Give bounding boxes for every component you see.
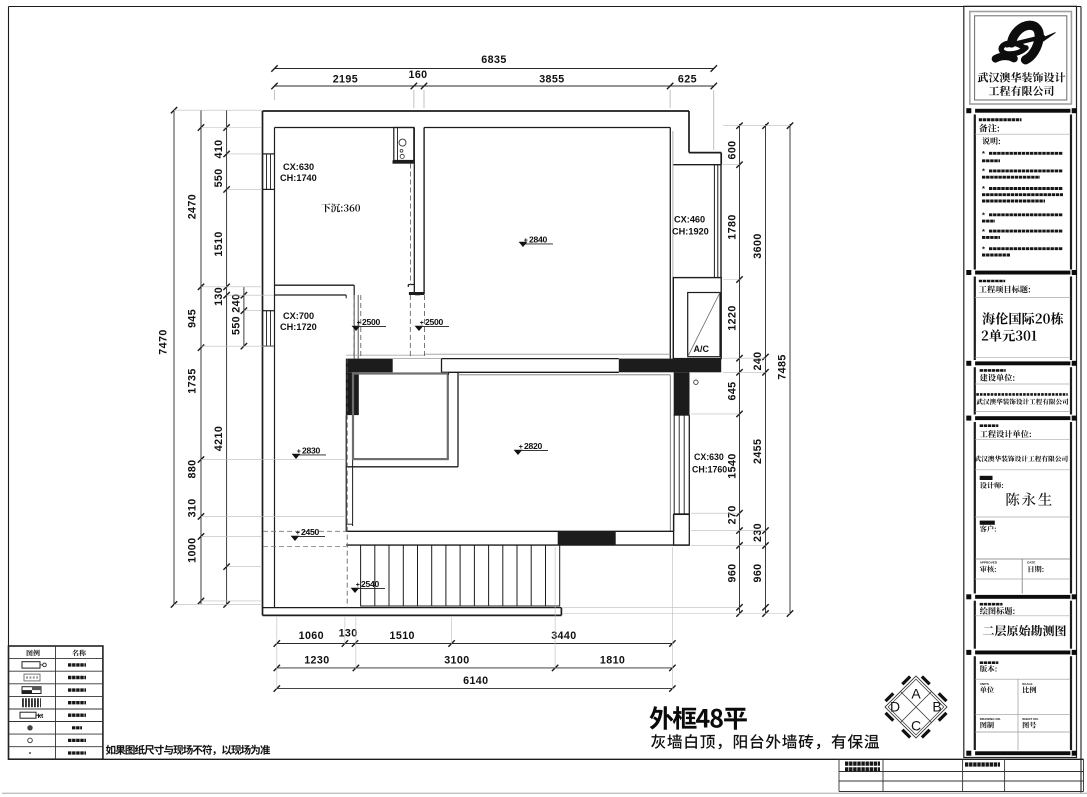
svg-text:2195: 2195: [333, 74, 358, 86]
svg-text:CH:1760: CH:1760: [692, 465, 727, 475]
svg-text:550: 550: [213, 168, 225, 187]
svg-text:240: 240: [231, 294, 243, 313]
svg-text:1510: 1510: [213, 231, 225, 256]
svg-text:1060: 1060: [299, 630, 324, 642]
svg-text:D: D: [890, 699, 900, 715]
svg-text:2500: 2500: [362, 317, 380, 327]
svg-text:645: 645: [727, 381, 739, 400]
svg-text:*: *: [982, 149, 985, 158]
svg-text:945: 945: [187, 309, 199, 328]
svg-text:CX:630: CX:630: [283, 162, 314, 172]
svg-text:2455: 2455: [752, 439, 764, 464]
svg-text:1000: 1000: [187, 538, 199, 563]
svg-text:A/C: A/C: [694, 344, 710, 354]
svg-text:7485: 7485: [777, 354, 789, 379]
svg-text:CH:1920: CH:1920: [672, 227, 709, 237]
svg-text:2450: 2450: [301, 527, 319, 537]
svg-text:960: 960: [752, 563, 764, 582]
svg-text:SCALE: SCALE: [1022, 682, 1033, 686]
svg-text:CX:460: CX:460: [674, 215, 705, 225]
svg-text:3100: 3100: [444, 655, 469, 667]
svg-text:6140: 6140: [463, 675, 488, 687]
svg-text:270: 270: [727, 505, 739, 524]
svg-text:CX:630: CX:630: [694, 452, 724, 462]
svg-text:6835: 6835: [481, 54, 506, 66]
svg-text:*: *: [982, 211, 985, 220]
svg-text:DRAWING NO.: DRAWING NO.: [980, 717, 1001, 721]
svg-text:3855: 3855: [539, 74, 564, 86]
svg-text:2540: 2540: [361, 579, 379, 589]
svg-text:2500: 2500: [425, 317, 443, 327]
svg-text:3600: 3600: [752, 233, 764, 258]
svg-text:310: 310: [187, 498, 199, 517]
svg-text:1510: 1510: [390, 630, 415, 642]
svg-text:SHEET NO.: SHEET NO.: [1022, 717, 1039, 721]
svg-text:UNITS: UNITS: [980, 682, 989, 686]
svg-text:7470: 7470: [158, 329, 170, 354]
svg-text:CH:1740: CH:1740: [280, 173, 317, 183]
svg-text:CH:1720: CH:1720: [280, 322, 317, 332]
svg-text:DATE: DATE: [1027, 561, 1035, 565]
svg-text:CX:700: CX:700: [283, 311, 314, 321]
svg-text:C: C: [911, 718, 921, 734]
svg-text:2840: 2840: [529, 235, 547, 245]
svg-text:880: 880: [187, 459, 199, 478]
svg-text:*: *: [982, 184, 985, 193]
svg-text:1220: 1220: [727, 305, 739, 330]
svg-text:*: *: [982, 244, 985, 253]
svg-text:1230: 1230: [304, 655, 329, 667]
svg-text:2830: 2830: [302, 446, 320, 456]
svg-text:410: 410: [213, 139, 225, 158]
svg-text:*: *: [982, 227, 985, 236]
svg-text:130: 130: [339, 628, 358, 640]
svg-text:960: 960: [727, 563, 739, 582]
svg-text:2470: 2470: [187, 194, 199, 219]
svg-text:A: A: [911, 686, 921, 702]
svg-text:130: 130: [213, 287, 225, 306]
svg-text:550: 550: [231, 316, 243, 335]
svg-text:230: 230: [752, 523, 764, 542]
svg-text:160: 160: [408, 69, 427, 81]
svg-text:600: 600: [727, 140, 739, 159]
svg-text:*: *: [982, 167, 985, 176]
svg-text:1810: 1810: [600, 655, 625, 667]
svg-text:2820: 2820: [524, 441, 542, 451]
svg-text:B: B: [932, 699, 941, 715]
svg-text:4210: 4210: [213, 426, 225, 451]
svg-text:kt: kt: [38, 713, 45, 720]
svg-text:240: 240: [752, 351, 764, 370]
svg-text:625: 625: [678, 74, 697, 86]
svg-text:1735: 1735: [187, 368, 199, 393]
svg-text:1540: 1540: [727, 453, 739, 478]
svg-text:APPROVED: APPROVED: [980, 561, 998, 565]
svg-text:1780: 1780: [727, 214, 739, 239]
